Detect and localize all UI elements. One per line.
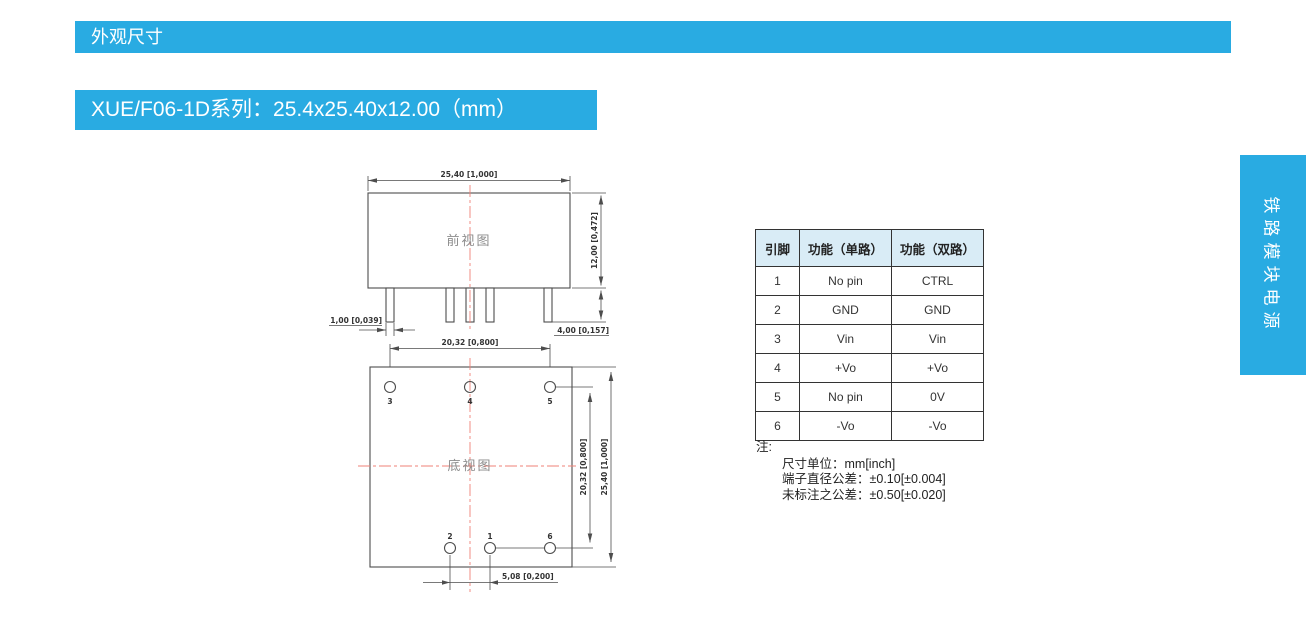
dimension-drawing: 25,40 [1,000] 前视图 12,00 [0,472] [325,155,625,605]
dual-function-cell: GND [892,296,984,325]
pin-number-6: 6 [547,532,552,541]
single-function-cell: No pin [800,267,892,296]
front-pins [386,288,552,322]
bottom-bodyheight-label: 25,40 [1,000] [600,439,609,496]
dual-function-cell: -Vo [892,412,984,441]
bottom-view: 20,32 [0,800] 底视图 3 4 5 [358,338,616,592]
pin-number-cell: 1 [756,267,800,296]
side-tab-label: 铁路模块电源 [1261,196,1286,334]
note-line: 端子直径公差：±0.10[±0.004] [782,472,946,488]
note-line: 尺寸单位：mm[inch] [782,457,946,473]
dual-function-cell: CTRL [892,267,984,296]
pin-number-2: 2 [447,532,452,541]
bottom-view-label: 底视图 [447,458,492,474]
pin-length-dimension: 4,00 [0,157] [552,291,609,336]
dual-function-cell: Vin [892,325,984,354]
section-banner-label: 外观尺寸 [91,27,163,47]
front-view-label: 前视图 [446,233,491,249]
table-row: 5 No pin 0V [756,383,984,412]
front-height-dimension: 12,00 [0,472] [572,193,606,288]
single-function-cell: GND [800,296,892,325]
front-width-label: 25,40 [1,000] [441,170,498,179]
dual-function-cell: +Vo [892,354,984,383]
pin-number-cell: 4 [756,354,800,383]
bottom-pinspan-label: 20,32 [0,800] [442,338,499,347]
datasheet-page: 外观尺寸 XUE/F06-1D系列：25.4x25.40x12.00（mm） 2… [0,0,1306,624]
pin-width-label: 1,00 [0,039] [330,316,382,325]
pin-hole-2 [445,543,456,554]
pin-number-1: 1 [487,532,492,541]
single-function-cell: +Vo [800,354,892,383]
bottom-vertical-pinspan-dimension: 20,32 [0,800] [579,393,590,543]
header-single: 功能（单路） [800,230,892,267]
pin-number-cell: 5 [756,383,800,412]
table-header-row: 引脚 功能（单路） 功能（双路） [756,230,984,267]
single-function-cell: Vin [800,325,892,354]
side-tab-railway-module: 铁路模块电源 [1240,155,1306,375]
notes-label: 注: [756,440,946,456]
series-title-bar: XUE/F06-1D系列：25.4x25.40x12.00（mm） [75,90,597,130]
pin-function-table: 引脚 功能（单路） 功能（双路） 1 No pin CTRL 2 GND GND… [755,229,984,441]
pin-hole-3 [385,382,396,393]
pin-length-label: 4,00 [0,157] [557,326,609,335]
single-function-cell: No pin [800,383,892,412]
single-function-cell: -Vo [800,412,892,441]
pin-offset-label: 5,08 [0,200] [502,572,554,581]
pin-hole-1 [485,543,496,554]
pin-number-cell: 2 [756,296,800,325]
pin-number-4: 4 [467,397,472,406]
pin-hole-5 [545,382,556,393]
table-row: 6 -Vo -Vo [756,412,984,441]
pin-number-cell: 3 [756,325,800,354]
front-view: 25,40 [1,000] 前视图 12,00 [0,472] [329,170,609,336]
notes-block: 注: 尺寸单位：mm[inch] 端子直径公差：±0.10[±0.004] 未标… [756,440,946,503]
pin-width-dimension: 1,00 [0,039] [329,316,415,336]
table-row: 3 Vin Vin [756,325,984,354]
pin-hole-6 [545,543,556,554]
front-width-dimension: 25,40 [1,000] [368,170,570,191]
table-row: 2 GND GND [756,296,984,325]
bottom-vertical-pinspan-label: 20,32 [0,800] [579,439,588,496]
table-row: 1 No pin CTRL [756,267,984,296]
table-row: 4 +Vo +Vo [756,354,984,383]
header-dual: 功能（双路） [892,230,984,267]
pin-number-cell: 6 [756,412,800,441]
header-pin: 引脚 [756,230,800,267]
note-line: 未标注之公差：±0.50[±0.020] [782,488,946,504]
section-banner: 外观尺寸 [75,21,1231,53]
series-title-label: XUE/F06-1D系列：25.4x25.40x12.00（mm） [91,98,517,121]
pin-number-5: 5 [547,397,552,406]
front-height-label: 12,00 [0,472] [590,212,599,269]
pin-number-3: 3 [387,397,392,406]
dual-function-cell: 0V [892,383,984,412]
